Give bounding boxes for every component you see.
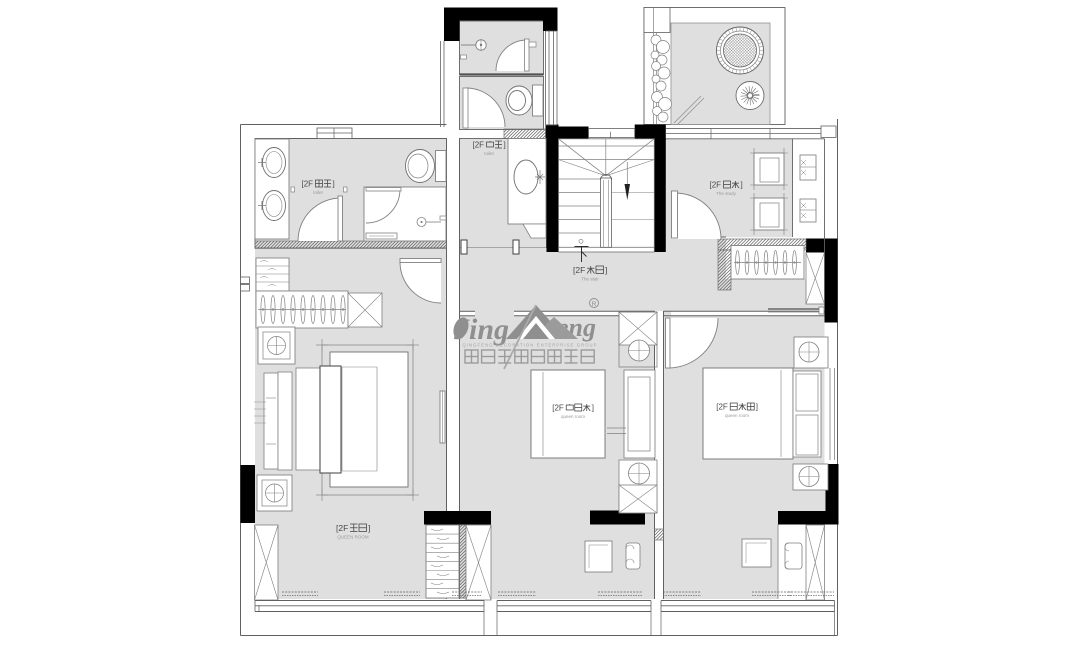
svg-text:Jing: Jing — [453, 313, 509, 346]
svg-text:[2F: [2F — [336, 523, 348, 533]
svg-text:[2F: [2F — [573, 265, 585, 275]
svg-text:]: ] — [605, 265, 607, 275]
svg-text:QINGFENG DECORATION ENTERPRISE: QINGFENG DECORATION ENTERPRISE GROUP — [462, 343, 597, 348]
svg-text:[2F: [2F — [552, 404, 564, 413]
svg-text:The stair: The stair — [581, 277, 599, 282]
svg-text:toilet: toilet — [484, 151, 494, 156]
svg-text:R: R — [592, 301, 597, 308]
svg-text:]: ] — [504, 141, 506, 150]
svg-text:[2F: [2F — [710, 181, 722, 190]
svg-text:]: ] — [756, 403, 758, 412]
svg-text:]: ] — [741, 181, 743, 190]
svg-text:[2F: [2F — [302, 180, 314, 189]
svg-text:The study: The study — [716, 191, 737, 196]
svg-text:toilet: toilet — [313, 190, 323, 195]
svg-text:]: ] — [368, 523, 370, 533]
svg-text:]: ] — [592, 404, 594, 413]
svg-text:queen room: queen room — [725, 413, 749, 418]
svg-text:[2F: [2F — [473, 141, 485, 150]
svg-text:QUEEN ROOM: QUEEN ROOM — [337, 535, 369, 540]
svg-text:[2F: [2F — [716, 403, 728, 412]
svg-text:queen room: queen room — [561, 414, 585, 419]
svg-text:]: ] — [333, 180, 335, 189]
